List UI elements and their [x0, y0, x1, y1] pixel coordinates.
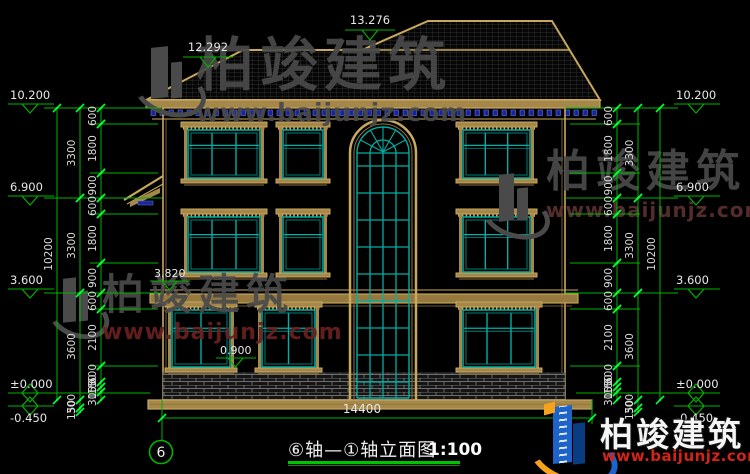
elevation-label: ±0.000: [10, 377, 53, 391]
overall-dim-label: 14400: [343, 402, 381, 416]
elevation-label: 3.600: [10, 273, 43, 287]
elevation-label: 10.200: [676, 88, 716, 102]
dim-label: 3300: [624, 140, 636, 167]
dim-label: 3300: [66, 232, 78, 259]
dim-label: 1800: [603, 225, 615, 252]
elevation-label: 6.900: [10, 180, 43, 194]
elevation-label: -0.450: [10, 411, 47, 425]
drawing-scale: 1:100: [428, 440, 482, 460]
dim-label: 1800: [87, 225, 99, 252]
dim-label: 900: [603, 268, 615, 288]
dim-label: 3600: [624, 333, 636, 360]
dim-label: 900: [603, 175, 615, 195]
cad-elevation-drawing: 柏竣建筑www.baijunjz.com柏竣建筑www.baijunjz.com…: [0, 0, 750, 474]
dim-label: 900: [87, 175, 99, 195]
elevation-label: 12.292: [188, 40, 228, 54]
dim-label: 10200: [43, 237, 55, 270]
company-logo: 柏竣建筑 www.baijunjz.com: [534, 400, 750, 474]
dim-label: 1800: [603, 135, 615, 162]
elevation-label: 13.276: [350, 13, 390, 27]
elevation-label: 10.200: [10, 88, 50, 102]
dim-label: 600: [87, 106, 99, 126]
dim-label: 1800: [87, 135, 99, 162]
axis-bubble-label: 6: [157, 445, 166, 461]
elevation-label: 3.600: [676, 273, 709, 287]
dim-label: 150: [66, 400, 78, 420]
dim-label: 2100: [87, 324, 99, 351]
dim-label: 600: [603, 106, 615, 126]
elevation-label: 6.900: [676, 180, 709, 194]
dim-label: 3600: [66, 333, 78, 360]
title-underline: [288, 461, 460, 464]
dim-label: 3300: [624, 232, 636, 259]
dim-label: 600: [87, 291, 99, 311]
dim-label: 10200: [646, 237, 658, 270]
dim-label: 900: [87, 268, 99, 288]
dim-label: 300: [87, 386, 99, 406]
dim-label: 600: [87, 196, 99, 216]
elevation-label: ±0.000: [676, 377, 719, 391]
dim-label: 2100: [603, 324, 615, 351]
company-logo-url: www.baijunjz.com: [602, 447, 750, 465]
dim-label: 600: [603, 291, 615, 311]
drawing-title: ⑥轴—①轴立面图: [288, 436, 436, 462]
elevation-label: 3.820: [154, 267, 186, 280]
company-logo-icon: [538, 402, 600, 472]
elevation-label: 0.900: [220, 344, 252, 357]
dim-label: 3300: [66, 140, 78, 167]
title-underline-2: [288, 465, 460, 466]
dim-label: 600: [603, 196, 615, 216]
